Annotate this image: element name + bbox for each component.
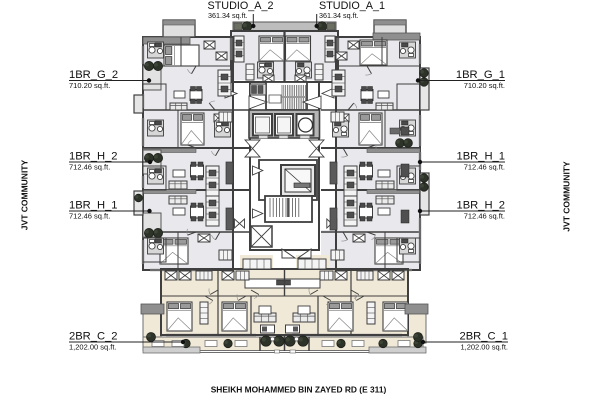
svg-text:710.20 sq.ft.: 710.20 sq.ft. xyxy=(69,81,110,90)
svg-text:JVT COMMUNITY: JVT COMMUNITY xyxy=(562,161,572,232)
svg-text:712.46 sq.ft.: 712.46 sq.ft. xyxy=(464,212,505,221)
svg-text:712.46 sq.ft.: 712.46 sq.ft. xyxy=(69,212,110,221)
svg-text:1BR_G_1: 1BR_G_1 xyxy=(456,69,505,81)
svg-text:SHEIKH MOHAMMED BIN ZAYED RD (: SHEIKH MOHAMMED BIN ZAYED RD (E 311) xyxy=(211,385,387,395)
svg-text:712.46 sq.ft.: 712.46 sq.ft. xyxy=(464,163,505,172)
svg-text:1,202.00 sq.ft.: 1,202.00 sq.ft. xyxy=(460,343,508,352)
svg-text:1BR_H_1: 1BR_H_1 xyxy=(69,200,118,212)
svg-text:JVT COMMUNITY: JVT COMMUNITY xyxy=(20,159,30,230)
svg-text:1BR_H_1: 1BR_H_1 xyxy=(456,151,505,163)
svg-text:1BR_H_2: 1BR_H_2 xyxy=(69,151,118,163)
svg-text:1BR_G_2: 1BR_G_2 xyxy=(69,69,118,81)
svg-text:712.46 sq.ft.: 712.46 sq.ft. xyxy=(69,163,110,172)
svg-text:710.20 sq.ft.: 710.20 sq.ft. xyxy=(464,81,505,90)
svg-text:361.34 sq.ft.: 361.34 sq.ft. xyxy=(208,11,248,20)
svg-text:361.34 sq.ft.: 361.34 sq.ft. xyxy=(319,11,359,20)
svg-text:1BR_H_2: 1BR_H_2 xyxy=(456,200,505,212)
svg-text:2BR_C_2: 2BR_C_2 xyxy=(69,331,118,343)
svg-text:1,202.00 sq.ft.: 1,202.00 sq.ft. xyxy=(69,343,117,352)
svg-text:2BR_C_1: 2BR_C_1 xyxy=(459,331,508,343)
